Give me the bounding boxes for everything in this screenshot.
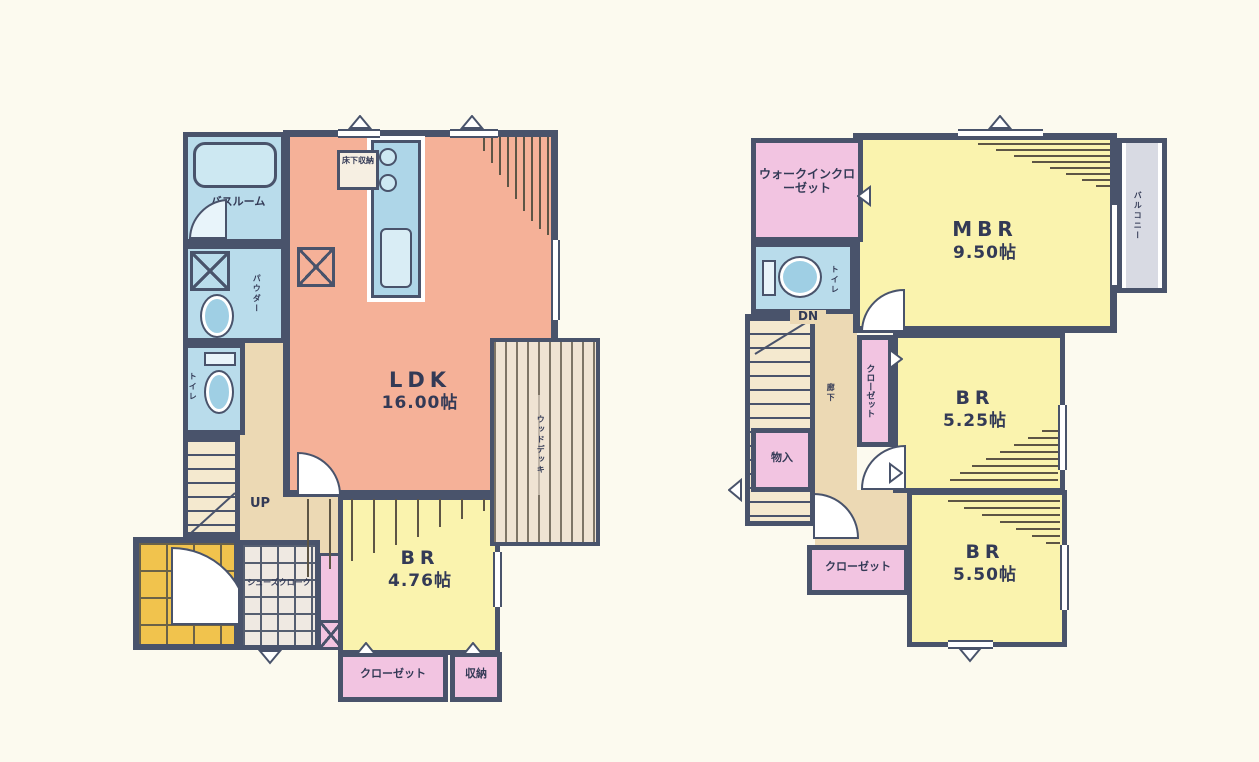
window-br2-right: [1060, 545, 1069, 610]
stairs-dn-label: DN: [790, 310, 826, 324]
shoe-closet-label: シューズクローク: [242, 578, 316, 587]
ldk-size: 16.00帖: [355, 394, 485, 414]
closet-2f-side-label: クローゼット: [864, 341, 874, 441]
washing-machine-icon: [190, 251, 230, 291]
underfloor-storage-label: 床下収納: [339, 156, 377, 165]
window-1f-top-left: [338, 129, 380, 138]
stairs-2f-diagonal: [745, 314, 815, 526]
window-2f-top: [958, 129, 1043, 138]
br2-door-arc: [812, 492, 860, 540]
floor-plan-canvas: バスルーム パウダー トイレ UP シューズクローク クローゼット 収納 ウッド…: [0, 0, 1259, 762]
stairs-up-label: UP: [240, 497, 280, 512]
wood-deck-label: ウッドデッキ: [536, 395, 545, 495]
door-mark-closet-1f-b: [462, 642, 484, 655]
vent-mark-1f-bottom: [258, 650, 282, 665]
refrigerator-icon: [297, 247, 335, 287]
closet-side-door-mark-b: [889, 462, 903, 484]
closet-2f-side: [857, 335, 893, 447]
closet-2f-bottom-label: クローゼット: [811, 561, 905, 574]
toilet-2f-label: トイレ: [830, 252, 839, 308]
toilet-1f-tank-icon: [204, 352, 236, 366]
window-br-1f-right: [493, 552, 502, 607]
storage-2f-label: 物入: [755, 452, 809, 465]
window-ldk-right: [551, 240, 560, 320]
vent-mark-2f-bottom: [958, 648, 982, 663]
wic-label: ウォークインクローゼット: [757, 168, 857, 196]
closet-1f-label: クローゼット: [344, 668, 442, 681]
storage-1f-label: 収納: [452, 668, 500, 681]
bathtub-icon: [193, 142, 277, 188]
washbasin-icon: [202, 296, 232, 336]
ldk-door-arc: [296, 451, 344, 497]
br1-2f-name: BR: [920, 388, 1030, 410]
powder-label: パウダー: [252, 252, 261, 336]
hallway-label: 廊下: [826, 368, 835, 418]
vent-mark-1f-b: [460, 115, 484, 130]
ldk-name: LDK: [355, 368, 485, 392]
stove-icon: [378, 146, 416, 186]
window-br1-right: [1058, 405, 1067, 470]
vent-mark-2f-left: [728, 478, 743, 502]
vent-mark-1f-a: [348, 115, 372, 130]
hatch-br2-corner: [945, 497, 1060, 549]
bath-door-arc: [188, 196, 228, 240]
mbr-name: MBR: [915, 218, 1055, 241]
hatch-mbr-corner: [975, 140, 1110, 192]
toilet-1f-label: トイレ: [188, 352, 197, 422]
closet-side-door-mark-a: [889, 348, 903, 370]
hatch-br-1f-corner: [300, 499, 495, 579]
vent-mark-2f-top: [988, 115, 1012, 130]
hatch-br1-corner: [948, 425, 1058, 487]
door-mark-closet-1f-a: [355, 642, 377, 655]
hatch-ldk-corner: [478, 137, 554, 237]
toilet-2f-bowl-icon: [780, 258, 820, 296]
mbr-door-arc: [860, 288, 906, 333]
toilet-2f-tank-icon: [762, 260, 776, 296]
balcony-label: バルコニー: [1133, 160, 1142, 272]
kitchen-sink-icon: [380, 228, 412, 288]
window-mbr-balcony: [1110, 205, 1119, 285]
toilet-1f-bowl-icon: [206, 372, 232, 412]
br2-2f-size: 5.50帖: [930, 566, 1040, 586]
mbr-size: 9.50帖: [915, 244, 1055, 264]
stairs-1f-diagonal: [183, 435, 240, 537]
wic-door-mark: [857, 185, 871, 207]
window-1f-top-right: [450, 129, 498, 138]
